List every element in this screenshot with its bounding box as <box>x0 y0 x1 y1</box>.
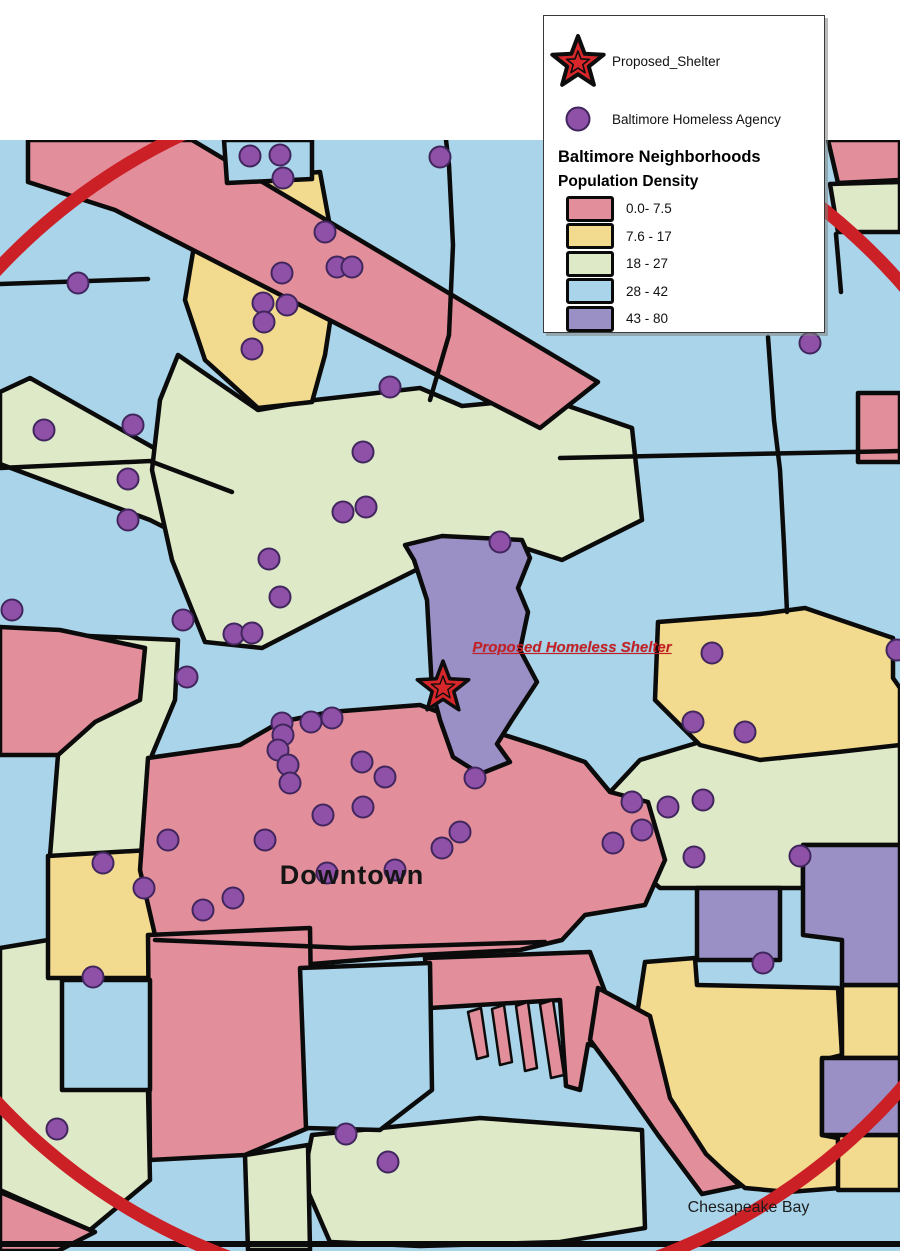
map-region-blue-harbor-inlet <box>300 963 432 1130</box>
homeless-agency-dot <box>465 768 486 789</box>
homeless-agency-dot <box>342 257 363 278</box>
legend-title: Baltimore Neighborhoods <box>558 148 824 167</box>
homeless-agency-dot <box>242 623 263 644</box>
homeless-agency-dot <box>118 510 139 531</box>
homeless-agency-dot <box>270 145 291 166</box>
homeless-agency-dot <box>68 273 89 294</box>
homeless-agency-dot <box>378 1152 399 1173</box>
homeless-agency-dot <box>790 846 811 867</box>
homeless-agency-dot <box>193 900 214 921</box>
homeless-agency-dot <box>336 1124 357 1145</box>
proposed-shelter-star-icon <box>544 29 612 93</box>
homeless-agency-dot <box>259 549 280 570</box>
homeless-agency-dot <box>385 860 406 881</box>
map-document: { "canvas": {"width": 900, "height": 125… <box>0 0 900 1251</box>
density-swatch-2 <box>566 223 614 249</box>
homeless-agency-dot <box>313 805 334 826</box>
legend-class-row: 0.0- 7.5 <box>566 195 824 223</box>
homeless-agency-dot <box>887 640 900 661</box>
map-region-pink-south-col <box>148 928 312 1160</box>
map-region-blue-pocket-north <box>224 140 312 183</box>
homeless-agency-dot <box>83 967 104 988</box>
legend-class-row: 43 - 80 <box>566 305 824 333</box>
homeless-agency-dot <box>255 830 276 851</box>
homeless-agency-dot <box>622 792 643 813</box>
homeless-agency-dot <box>352 752 373 773</box>
legend-class-row: 7.6 - 17 <box>566 223 824 251</box>
density-label-1: 0.0- 7.5 <box>626 201 672 216</box>
agency-dot-icon <box>544 105 612 133</box>
homeless-agency-dot <box>658 797 679 818</box>
homeless-agency-dot <box>177 667 198 688</box>
homeless-agency-dot <box>273 168 294 189</box>
density-swatch-3 <box>566 251 614 277</box>
homeless-agency-dot <box>333 502 354 523</box>
legend-class-row: 28 - 42 <box>566 278 824 306</box>
homeless-agency-dot <box>253 293 274 314</box>
density-swatch-5 <box>566 306 614 332</box>
map-region-green-south-wedge <box>245 1145 310 1250</box>
homeless-agency-dot <box>123 415 144 436</box>
homeless-agency-dot <box>693 790 714 811</box>
homeless-agency-dot <box>272 263 293 284</box>
homeless-agency-dot <box>322 708 343 729</box>
homeless-agency-dot <box>280 773 301 794</box>
density-label-5: 43 - 80 <box>626 311 668 326</box>
homeless-agency-dot <box>301 712 322 733</box>
homeless-agency-dot <box>375 767 396 788</box>
homeless-agency-dot <box>277 295 298 316</box>
map-region-yellow-east-strip-1 <box>842 985 900 1058</box>
map-region-purple-east-rect <box>697 888 780 960</box>
map-region-pink-northeast <box>828 140 900 183</box>
homeless-agency-dot <box>430 147 451 168</box>
homeless-agency-dot <box>490 532 511 553</box>
homeless-agency-dot <box>93 853 114 874</box>
homeless-agency-dot <box>353 797 374 818</box>
legend-panel: Proposed_Shelter Baltimore Homeless Agen… <box>543 15 825 333</box>
homeless-agency-dot <box>254 312 275 333</box>
legend-proposed-shelter-row: Proposed_Shelter <box>544 24 824 98</box>
homeless-agency-dot <box>702 643 723 664</box>
homeless-agency-dot <box>173 610 194 631</box>
map-region-blue-pocket-west <box>62 980 150 1090</box>
homeless-agency-dot <box>315 222 336 243</box>
homeless-agency-dot <box>270 587 291 608</box>
legend-agency-label: Baltimore Homeless Agency <box>612 112 781 127</box>
homeless-agency-dot <box>2 600 23 621</box>
homeless-agency-dot <box>158 830 179 851</box>
homeless-agency-dot <box>432 838 453 859</box>
legend-proposed-shelter-label: Proposed_Shelter <box>612 54 720 69</box>
legend-subtitle: Population Density <box>558 173 824 191</box>
homeless-agency-dot <box>632 820 653 841</box>
homeless-agency-dot <box>242 339 263 360</box>
homeless-agency-dot <box>800 333 821 354</box>
homeless-agency-dot <box>735 722 756 743</box>
map-region-yellow-east <box>655 608 900 760</box>
homeless-agency-dot <box>34 420 55 441</box>
homeless-agency-dot <box>753 953 774 974</box>
homeless-agency-dot <box>134 878 155 899</box>
homeless-agency-dot <box>603 833 624 854</box>
density-swatch-1 <box>566 196 614 222</box>
density-label-2: 7.6 - 17 <box>626 229 672 244</box>
homeless-agency-dot <box>450 822 471 843</box>
homeless-agency-dot <box>240 146 261 167</box>
homeless-agency-dot <box>356 497 377 518</box>
homeless-agency-dot <box>353 442 374 463</box>
homeless-agency-dot <box>380 377 401 398</box>
legend-class-row: 18 - 27 <box>566 250 824 278</box>
homeless-agency-dot <box>118 469 139 490</box>
homeless-agency-dot <box>47 1119 68 1140</box>
homeless-agency-dot <box>684 847 705 868</box>
homeless-agency-dot <box>223 888 244 909</box>
density-label-3: 18 - 27 <box>626 256 668 271</box>
homeless-agency-dot <box>683 712 704 733</box>
homeless-agency-dot <box>317 863 338 884</box>
density-label-4: 28 - 42 <box>626 284 668 299</box>
density-swatch-4 <box>566 278 614 304</box>
legend-agency-row: Baltimore Homeless Agency <box>544 100 824 138</box>
